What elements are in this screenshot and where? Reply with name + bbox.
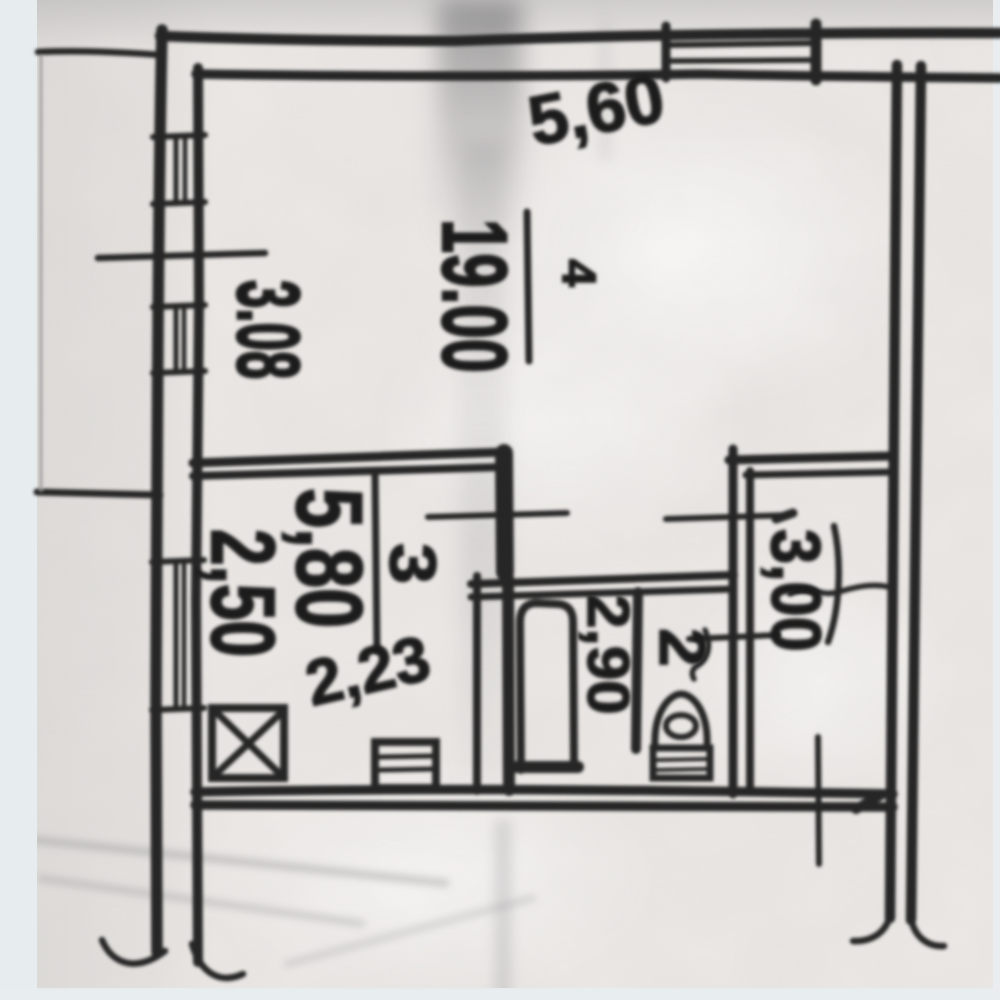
- svg-text:3.08: 3.08: [218, 280, 316, 379]
- svg-text:4: 4: [552, 259, 605, 287]
- svg-text:19.00: 19.00: [423, 219, 527, 373]
- svg-text:2,50: 2,50: [193, 529, 294, 657]
- svg-text:3: 3: [376, 543, 449, 584]
- svg-text:3,00: 3,00: [756, 529, 833, 652]
- svg-text:2: 2: [645, 628, 718, 667]
- svg-text:2,90: 2,90: [575, 594, 641, 715]
